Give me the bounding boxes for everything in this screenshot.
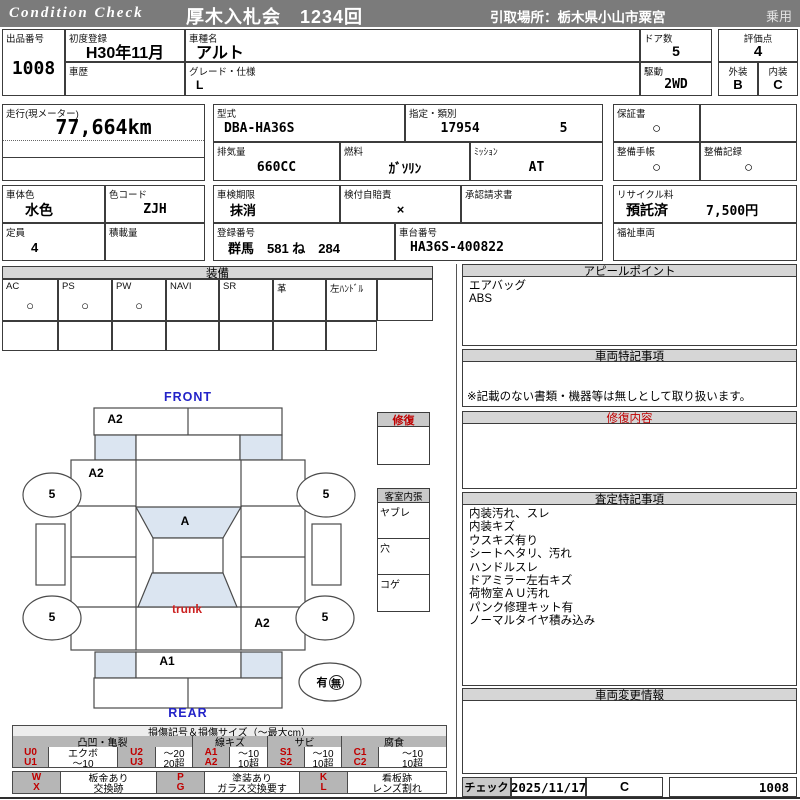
cabin-row-burn: コゲ [378,575,429,610]
equipment-cell-ac: AC ○ [2,279,58,321]
assessment-line: ウスキズ有り [469,535,796,548]
assessment-line: ノーマルタイヤ積み込み [469,615,796,628]
equipment-label-lhd: 左ﾊﾝﾄﾞﾙ [330,281,363,295]
repair-details-body [462,424,797,489]
equipment-label-leather: 革 [277,281,287,295]
first-registration-value: H30年11月 [66,41,184,61]
inspection-value: 抹消 [214,197,339,222]
interior-grade-cell: 内装 C [758,62,798,96]
grade-value: L [186,74,639,95]
recycle-status-value: 預託済 [626,200,668,220]
appeal-points-title: アピールポイント [462,264,797,277]
approval-request-cell: 承認請求書 [461,185,603,223]
auction-title: 厚木入札会 1234回 [186,3,363,29]
legend-desc: 10超 [379,757,447,768]
rear-label: REAR [158,706,218,720]
assessment-notes-body: 内装汚れ、スレ 内装キズ ウスキズ有り シートヘタリ、汚れ ハンドルスレ ドアミ… [462,505,797,686]
equipment-cell-extra [377,279,433,321]
appeal-line: エアバッグ [469,280,796,293]
vehicle-change-title: 車両変更情報 [462,688,797,701]
damage-mark-rear-right: A2 [246,616,278,630]
class-cell: 指定・類別 17954 5 [405,104,603,142]
drive-value: 2WD [641,74,711,95]
score-value: 4 [719,41,797,61]
trunk-label: trunk [152,602,222,616]
insurance-mark: × [341,197,460,222]
model-code-cell: 型式 DBA-HA36S [213,104,405,142]
equipment-cell-sr: SR [219,279,273,321]
capacity-cell: 定員 4 [2,223,105,261]
check-grade: C [587,778,662,796]
welfare-vehicle-label: 福祉車両 [617,225,655,239]
exterior-grade-value: B [719,74,757,95]
spare-has-label: 有 [317,674,328,690]
appeal-line: ABS [469,293,796,306]
mileage-value: 77,664km [3,115,204,139]
lot-number-value: 1008 [3,41,64,95]
transmission-value: AT [471,154,602,180]
vehicle-change-body [462,701,797,774]
vehicle-notes-title: 車両特記事項 [462,349,797,362]
legend-code: U1 [12,757,49,768]
mileage-cell: 走行(現メーター) 77,664km [2,104,205,181]
damage-diagram: FRONT REAR A2 A2 A trunk A2 A1 5 5 5 5 有… [0,390,460,720]
plate-number-cell: 登録番号 群馬 581 ね 284 [213,223,395,261]
brand-logo: Condition Check [9,5,144,22]
doors-value: 5 [641,41,711,61]
grade-cell: グレード・仕様 L [185,62,640,96]
cabin-lining-title: 客室内張 [378,489,429,503]
legend-code: U3 [118,757,156,768]
pickup-location: 引取場所：栃木県小山市粟宮 [490,6,666,26]
model-code-value: DBA-HA36S [214,116,404,141]
recycle-fee-cell: リサイクル料 預託済 7,500円 [613,185,797,223]
vin-cell: 車台番号 HA36S-400822 [395,223,603,261]
cabin-row-tear: ヤブレ [378,503,429,539]
check-label-cell: チェック [462,777,511,797]
assessment-line: ドアミラー左右キズ [469,575,796,588]
wheel-mark-rear-left: 5 [37,610,67,624]
fuel-value: ｶﾞｿﾘﾝ [341,154,469,180]
history-label: 車歴 [69,64,88,78]
equipment-row2-cell [112,321,166,351]
legend-desc: ～10 [49,757,118,768]
insurance-cell: 検付自賠責 × [340,185,461,223]
score-cell: 評価点 4 [718,29,798,62]
usage-type: 乗用 [766,6,792,25]
footer-lot-cell: 1008 [669,777,797,797]
legend-code: L [300,782,348,794]
cabin-row-hole: 穴 [378,539,429,575]
equipment-cell-ps: PS ○ [58,279,112,321]
equipment-mark-pw: ○ [113,291,165,320]
warranty-mark: ○ [614,116,699,141]
repair-flag-title: 修復 [378,413,429,427]
warranty-empty-cell [700,104,797,142]
recycle-fee-value: 7,500円 [706,200,758,219]
assessment-line: ハンドルスレ [469,562,796,575]
assessment-line: 荷物室ＡＵ汚れ [469,588,796,601]
maintenance-record-cell: 整備記録 ○ [700,142,797,181]
equipment-row2-cell [326,321,377,351]
approval-request-label: 承認請求書 [465,187,513,201]
equipment-cell-pw: PW ○ [112,279,166,321]
equipment-mark-ac: ○ [3,291,57,320]
spare-tire-indicator: 有 無 [304,674,356,690]
equipment-row2-cell [58,321,112,351]
legend-code: X [12,782,61,794]
equipment-cell-lhd: 左ﾊﾝﾄﾞﾙ [326,279,377,321]
damage-mark-left-front: A2 [80,466,112,480]
legend-extra-row-2: X 交換跡 G ガラス交換要す L レンズ割れ [12,782,447,794]
legend-code: A2 [193,757,230,768]
color-code-cell: 色コード ZJH [105,185,205,223]
color-code-value: ZJH [106,197,204,222]
damage-mark-front-bumper: A2 [100,412,130,426]
maintenance-record-mark: ○ [701,154,796,180]
transmission-cell: ﾐｯｼｮﾝ AT [470,142,603,181]
damage-mark-rear-panel: A1 [150,654,184,668]
legend-code: S2 [268,757,305,768]
load-capacity-cell: 積載量 [105,223,205,261]
vin-value: HA36S-400822 [396,235,602,260]
interior-grade-value: C [759,74,797,95]
assessment-notes-title: 査定特記事項 [462,492,797,505]
drive-cell: 駆動 2WD [640,62,712,96]
displacement-value: 660CC [214,154,339,180]
history-cell: 車歴 [65,62,185,96]
sheet-bottom-rule [0,797,800,799]
equipment-row2-cell [2,321,58,351]
wheel-mark-front-left: 5 [37,487,67,501]
body-color-cell: 車体色 水色 [2,185,105,223]
check-grade-cell: C [586,777,663,797]
repair-flag-box: 修復 [377,412,430,465]
wheel-mark-rear-right: 5 [310,610,340,624]
model-name-cell: 車種名 アルト [185,29,640,62]
model-name-value: アルト [186,41,639,61]
equipment-cell-leather: 革 [273,279,326,321]
spare-none-label-circled: 無 [329,675,344,690]
footer-lot-value: 1008 [670,778,796,796]
welfare-vehicle-cell: 福祉車両 [613,223,797,261]
fuel-cell: 燃料 ｶﾞｿﾘﾝ [340,142,470,181]
mileage-solid-divider [3,157,204,158]
legend-desc: レンズ割れ [348,782,447,794]
equipment-title: 装備 [2,266,433,279]
body-color-value: 水色 [3,197,104,222]
auction-sheet: Condition Check 厚木入札会 1234回 引取場所：栃木県小山市粟… [0,0,800,800]
equipment-label-sr: SR [223,281,236,292]
cabin-lining-box: 客室内張 ヤブレ 穴 コゲ [377,488,430,612]
repair-details-title: 修復内容 [462,411,797,424]
maintenance-book-cell: 整備手帳 ○ [613,142,700,181]
appeal-points-body: エアバッグ ABS [462,277,797,346]
legend-code: C2 [342,757,379,768]
check-label: チェック [463,778,510,796]
legend-desc: 10超 [230,757,268,768]
legend-desc: 10超 [305,757,342,768]
assessment-line: シートヘタリ、汚れ [469,548,796,561]
check-date: 2025/11/17 [512,778,585,796]
legend-desc: ガラス交換要す [205,782,300,794]
header-bar: Condition Check 厚木入札会 1234回 引取場所：栃木県小山市粟… [0,0,800,27]
vehicle-notes-disclaimer: ※記載のない書類・機器等は無しとして取り扱います。 [467,388,751,404]
equipment-cell-navi: NAVI [166,279,219,321]
load-capacity-label: 積載量 [109,225,138,239]
maintenance-book-mark: ○ [614,154,699,180]
mileage-dotted-divider [3,140,204,141]
lot-number-cell: 出品番号 1008 [2,29,65,96]
exterior-grade-cell: 外装 B [718,62,758,96]
assessment-line: 内装汚れ、スレ [469,508,796,521]
assessment-line: パンク修理キット有 [469,602,796,615]
displacement-cell: 排気量 660CC [213,142,340,181]
class-value-2: 5 [560,121,568,136]
class-value-1: 17954 [441,121,480,136]
wheel-mark-front-right: 5 [311,487,341,501]
first-registration-cell: 初度登録 H30年11月 [65,29,185,62]
vehicle-notes-body: ※記載のない書類・機器等は無しとして取り扱います。 [462,362,797,407]
damage-mark-windshield: A [170,514,200,528]
warranty-cell: 保証書 ○ [613,104,700,142]
legend-data-row-2: U1 ～10 U3 20超 A2 10超 S2 10超 C2 10超 [12,757,447,768]
plate-number-value: 群馬 581 ね 284 [214,235,394,260]
check-date-cell: 2025/11/17 [511,777,586,797]
inspection-cell: 車検期限 抹消 [213,185,340,223]
equipment-row2-cell [219,321,273,351]
legend-desc: 交換跡 [61,782,157,794]
front-label: FRONT [160,390,216,404]
equipment-row2-cell [166,321,219,351]
equipment-row2-cell [273,321,326,351]
doors-cell: ドア数 5 [640,29,712,62]
capacity-value: 4 [3,235,104,260]
equipment-mark-ps: ○ [59,291,111,320]
legend-desc: 20超 [156,757,193,768]
equipment-label-navi: NAVI [170,281,191,292]
assessment-line: 内装キズ [469,521,796,534]
legend-code: G [157,782,205,794]
